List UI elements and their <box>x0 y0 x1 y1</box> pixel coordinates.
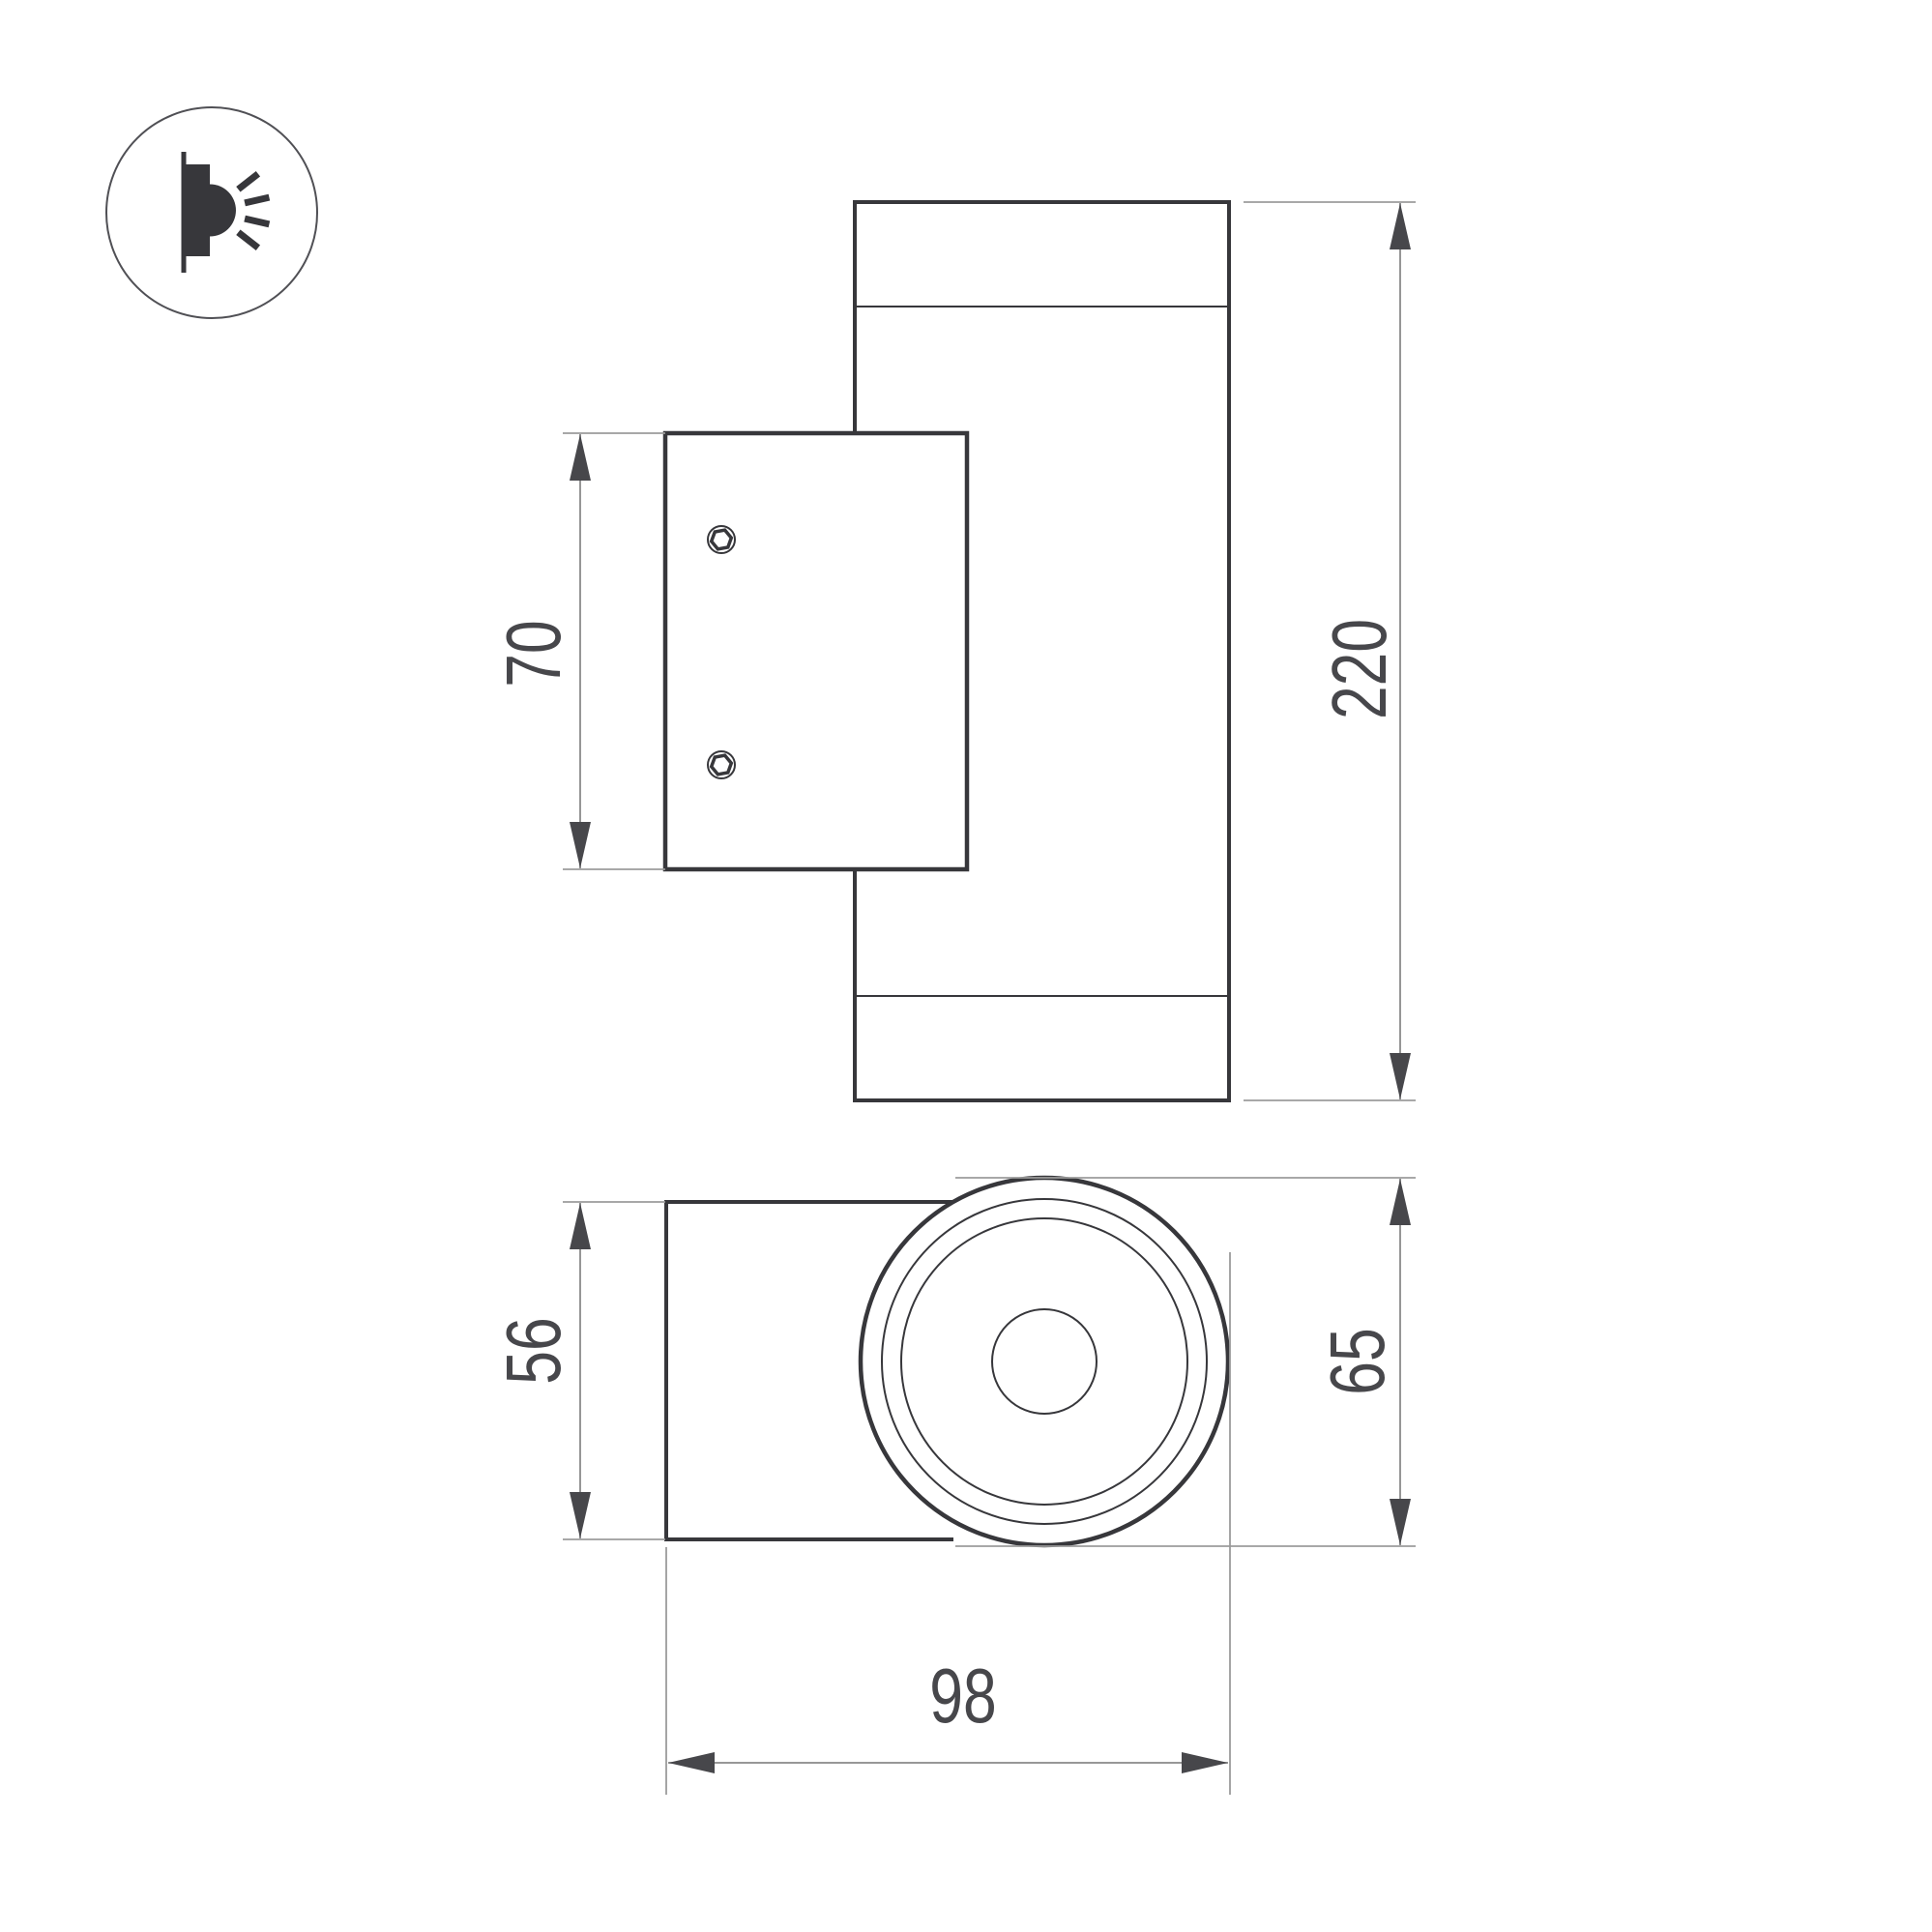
bottom-view <box>666 1178 1228 1545</box>
arrow-down <box>1390 1053 1411 1099</box>
mounting-plate <box>665 433 967 869</box>
technical-drawing: 70 220 56 65 <box>0 0 1932 1932</box>
side-view <box>665 202 1229 1100</box>
arrow-left <box>668 1752 715 1773</box>
dim-65-label: 65 <box>1314 1328 1400 1394</box>
icon-lamp-body <box>186 164 210 256</box>
dim-98-label: 98 <box>929 1653 996 1739</box>
dimension-overall-height: 220 <box>1244 202 1416 1100</box>
arrow-down <box>1390 1499 1411 1545</box>
dimension-bracket-height: 56 <box>490 1202 665 1539</box>
arrow-up <box>1390 203 1411 249</box>
drawing-svg: 70 220 56 65 <box>0 0 1932 1932</box>
body-outer-circle <box>861 1178 1228 1545</box>
arrow-down <box>570 822 591 868</box>
dim-220-label: 220 <box>1316 619 1402 719</box>
dim-70-label: 70 <box>490 620 576 687</box>
arrow-right <box>1182 1752 1228 1773</box>
arrow-up <box>1390 1179 1411 1225</box>
dim-56-label: 56 <box>490 1317 576 1384</box>
arrow-down <box>570 1492 591 1538</box>
wall-light-icon <box>106 107 317 318</box>
icon-wall-line <box>182 152 187 273</box>
arrow-up <box>570 434 591 481</box>
dimension-plate-height: 70 <box>490 433 665 869</box>
arrow-up <box>570 1203 591 1249</box>
